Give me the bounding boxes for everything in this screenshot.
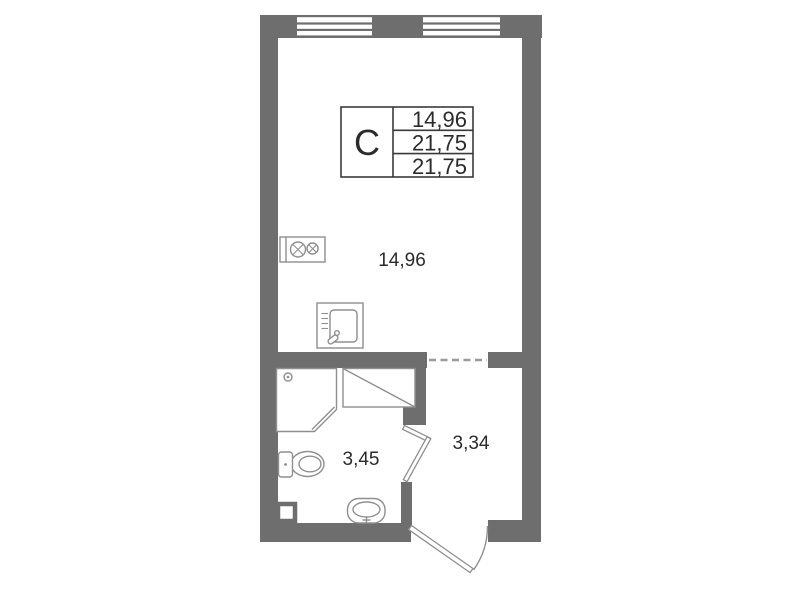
stove-icon — [280, 237, 325, 262]
wall-bottom — [260, 523, 411, 542]
wall-bath-east-upper — [415, 368, 426, 405]
duct-shaft — [278, 504, 295, 521]
wall-bottom-right-corner — [488, 520, 541, 542]
title-block: С 14,96 21,75 21,75 — [341, 107, 473, 179]
wall-middle — [260, 352, 427, 368]
floor-plan-canvas: С 14,96 21,75 21,75 14,96 3,45 3,34 — [0, 0, 799, 600]
shower-cabin-icon — [277, 369, 337, 432]
toilet-icon — [279, 452, 325, 478]
appliance-place-icon — [343, 369, 415, 408]
title-block-row-3: 21,75 — [412, 154, 467, 179]
door-swing-symbol — [403, 426, 431, 482]
kitchen-sink-icon — [317, 303, 363, 348]
floor-plan: С 14,96 21,75 21,75 14,96 3,45 3,34 — [0, 0, 799, 600]
wall-left — [260, 15, 278, 542]
window-symbol-left — [297, 15, 372, 38]
living-area-label: 14,96 — [378, 250, 426, 271]
entrance-door-swing-symbol — [409, 526, 488, 573]
washbasin-icon — [348, 499, 386, 524]
wall-top-pier — [372, 15, 423, 38]
title-block-row-2: 21,75 — [412, 131, 467, 156]
bathroom-area-label: 3,45 — [343, 449, 380, 470]
hallway-area-label: 3,34 — [453, 433, 490, 454]
wall-bath-east-lower — [401, 482, 412, 525]
wall-middle-stub — [488, 352, 522, 368]
apartment-type-label: С — [354, 122, 380, 163]
window-symbol-right — [423, 15, 500, 38]
title-block-row-1: 14,96 — [412, 107, 467, 132]
wall-right — [522, 15, 541, 542]
